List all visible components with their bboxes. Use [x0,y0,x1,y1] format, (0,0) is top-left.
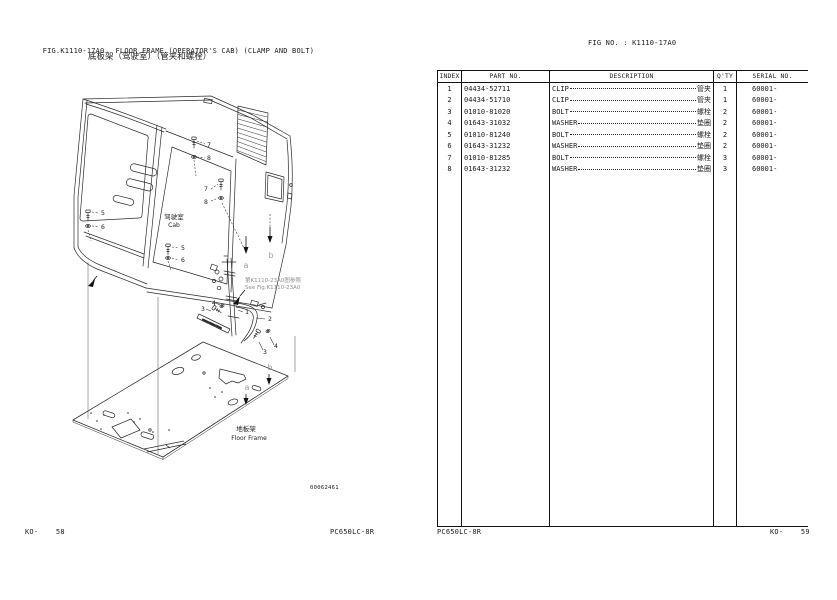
callout-3: 3 [201,305,205,313]
column-header-part-no: PART NO. [461,71,549,83]
callout-5: 5 [101,209,105,217]
clamp-assembly-drawing [197,256,266,343]
cell-serial-no: 60001- [736,164,808,176]
callout-1: 1 [245,308,249,316]
bolt-icon [86,210,90,221]
cell-description: WASHER 垫圈 [549,118,713,130]
description-zh: 垫圈 [697,118,711,128]
callout-2: 2 [268,315,272,323]
callout-7: 7 [207,141,211,149]
callout-a: a [245,383,250,392]
table-column-filler [713,175,736,526]
parts-table: INDEX PART NO. DESCRIPTION Q'TY SERIAL N… [437,70,808,527]
column-header-description: DESCRIPTION [549,71,713,83]
bolt-icon [166,244,170,255]
cell-index: 3 [437,106,461,118]
cell-description: BOLT 螺栓 [549,106,713,118]
cell-qty: 2 [713,118,736,130]
washer-icon [219,197,224,200]
description-en: BOLT [552,131,569,139]
washer-icon [86,225,91,228]
description-zh: 螺栓 [697,107,711,117]
description-en: CLIP [552,96,569,104]
callout-5: 5 [181,244,185,252]
cell-description: CLIP 管夹 [549,83,713,95]
dotted-leader [578,146,696,147]
washer-icon [265,329,270,333]
description-en: CLIP [552,85,569,93]
ref-note-en: See Fig.K1110-23A0 [245,285,301,291]
bolt-icon [192,137,196,148]
column-header-serial-no: SERIAL NO. [736,71,808,83]
cell-part-no: 01010-81020 [461,106,549,118]
cell-qty: 3 [713,152,736,164]
cell-index: 1 [437,83,461,95]
column-header-qty: Q'TY [713,71,736,83]
table-column-filler [736,175,808,526]
fastener-icons [86,137,271,340]
callout-7: 7 [204,185,208,193]
cell-index: 6 [437,141,461,153]
cell-qty: 2 [713,106,736,118]
dotted-leader [570,157,696,158]
ref-note-zh: 第K1110-23A0图参照 [245,276,301,284]
cell-description: WASHER 垫圈 [549,164,713,176]
column-header-index: INDEX [437,71,461,83]
description-zh: 垫圈 [697,141,711,151]
dotted-leader [570,134,696,135]
cell-serial-no: 60001- [736,152,808,164]
footer-page-left: KO- 58 [25,528,65,536]
description-zh: 螺栓 [697,130,711,140]
callout-3: 3 [263,348,267,356]
callout-6: 6 [101,223,105,231]
callout-4: 4 [274,342,278,350]
cell-part-no: 04434-52711 [461,83,549,95]
cell-description: CLIP 管夹 [549,95,713,107]
description-en: WASHER [552,142,577,150]
footer-model-right: PC650LC-8R [437,528,481,536]
description-en: BOLT [552,154,569,162]
cell-qty: 1 [713,83,736,95]
description-en: WASHER [552,165,577,173]
cell-qty: 2 [713,129,736,141]
floor-frame-label-en: Floor Frame [231,435,267,442]
cell-description: BOLT 螺栓 [549,129,713,141]
cell-part-no: 01010-81240 [461,129,549,141]
callout-8: 8 [207,154,211,162]
cell-serial-no: 60001- [736,141,808,153]
drawing-text-labels: 驾驶室 Cab 第K1110-23A0图参照 See Fig.K1110-23A… [164,212,339,491]
cell-serial-no: 60001- [736,106,808,118]
callout-8: 8 [204,198,208,206]
cell-qty: 1 [713,95,736,107]
cell-part-no: 01643-31232 [461,141,549,153]
table-column-filler [437,175,461,526]
description-zh: 管夹 [697,84,711,94]
cell-part-no: 01010-81285 [461,152,549,164]
cell-part-no: 01643-31232 [461,164,549,176]
callout-6: 6 [181,256,185,264]
dotted-leader [570,88,696,89]
pointer-arrows [88,227,273,405]
description-en: WASHER [552,119,577,127]
cell-part-no: 01643-31032 [461,118,549,130]
cell-description: WASHER 垫圈 [549,141,713,153]
callout-a: a [244,261,249,270]
floor-frame-label-zh: 地板架 [236,424,256,433]
callout-labels: 7 8 7 8 5 6 5 6 4 3 1 2 3 4 a b a b [101,141,278,392]
cab-label-en: Cab [168,222,180,229]
cell-description: BOLT 螺栓 [549,152,713,164]
table-column-filler [549,175,713,526]
drawing-number: 00062461 [310,485,339,491]
cell-index: 7 [437,152,461,164]
description-zh: 螺栓 [697,153,711,163]
cell-index: 8 [437,164,461,176]
washer-icon [219,304,224,308]
dotted-leader [578,169,696,170]
footer-model-left: PC650LC-8R [330,528,374,536]
cell-serial-no: 60001- [736,83,808,95]
cell-serial-no: 60001- [736,118,808,130]
cell-serial-no: 60001- [736,95,808,107]
callout-b: b [268,251,273,260]
cell-serial-no: 60001- [736,129,808,141]
table-column-filler [461,175,549,526]
dotted-leader [570,100,696,101]
callout-b: b [267,363,272,372]
cab-label-zh: 驾驶室 [164,212,184,221]
cell-index: 4 [437,118,461,130]
dotted-leader [578,123,696,124]
description-zh: 垫圈 [697,164,711,174]
cell-qty: 3 [713,164,736,176]
description-zh: 管夹 [697,95,711,105]
cell-part-no: 04434-51710 [461,95,549,107]
footer-page-right: KO- 59 [770,528,810,536]
cell-index: 2 [437,95,461,107]
washer-icon [166,257,171,260]
dotted-leader [570,111,696,112]
parts-catalog-page: FIG.K1110-17A0FLOOR FRAME (OPERATOR'S CA… [0,0,837,600]
cell-index: 5 [437,129,461,141]
bolt-icon [219,179,223,190]
description-en: BOLT [552,108,569,116]
cell-qty: 2 [713,141,736,153]
callout-4: 4 [212,299,216,307]
